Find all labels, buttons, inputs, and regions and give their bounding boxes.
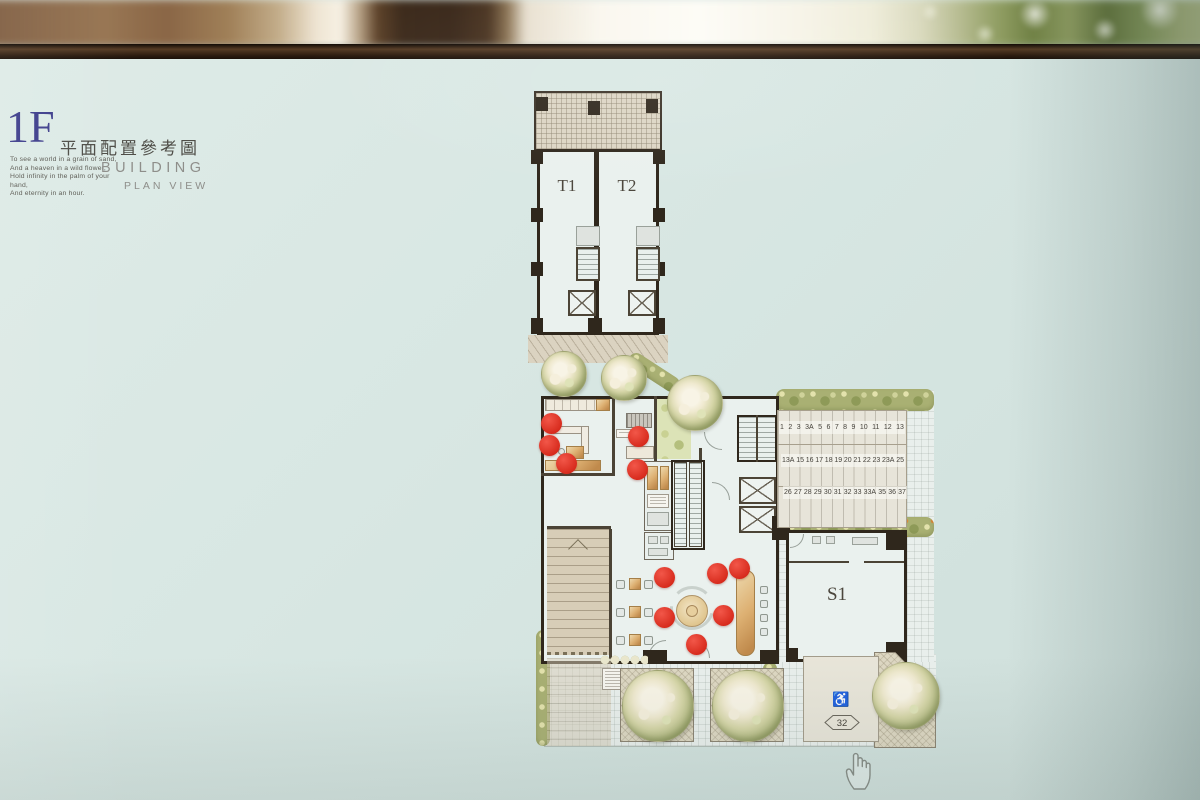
red-marker-dot[interactable]	[686, 634, 707, 655]
red-marker-dot[interactable]	[713, 605, 734, 626]
red-marker-dot[interactable]	[556, 453, 577, 474]
red-marker-dot[interactable]	[627, 459, 648, 480]
red-marker-dot[interactable]	[541, 413, 562, 434]
red-marker-dot[interactable]	[539, 435, 560, 456]
red-markers-layer	[0, 0, 1200, 800]
red-marker-dot[interactable]	[628, 426, 649, 447]
red-marker-dot[interactable]	[654, 567, 675, 588]
hand-cursor-icon	[842, 748, 876, 792]
red-marker-dot[interactable]	[729, 558, 750, 579]
red-marker-dot[interactable]	[654, 607, 675, 628]
red-marker-dot[interactable]	[707, 563, 728, 584]
